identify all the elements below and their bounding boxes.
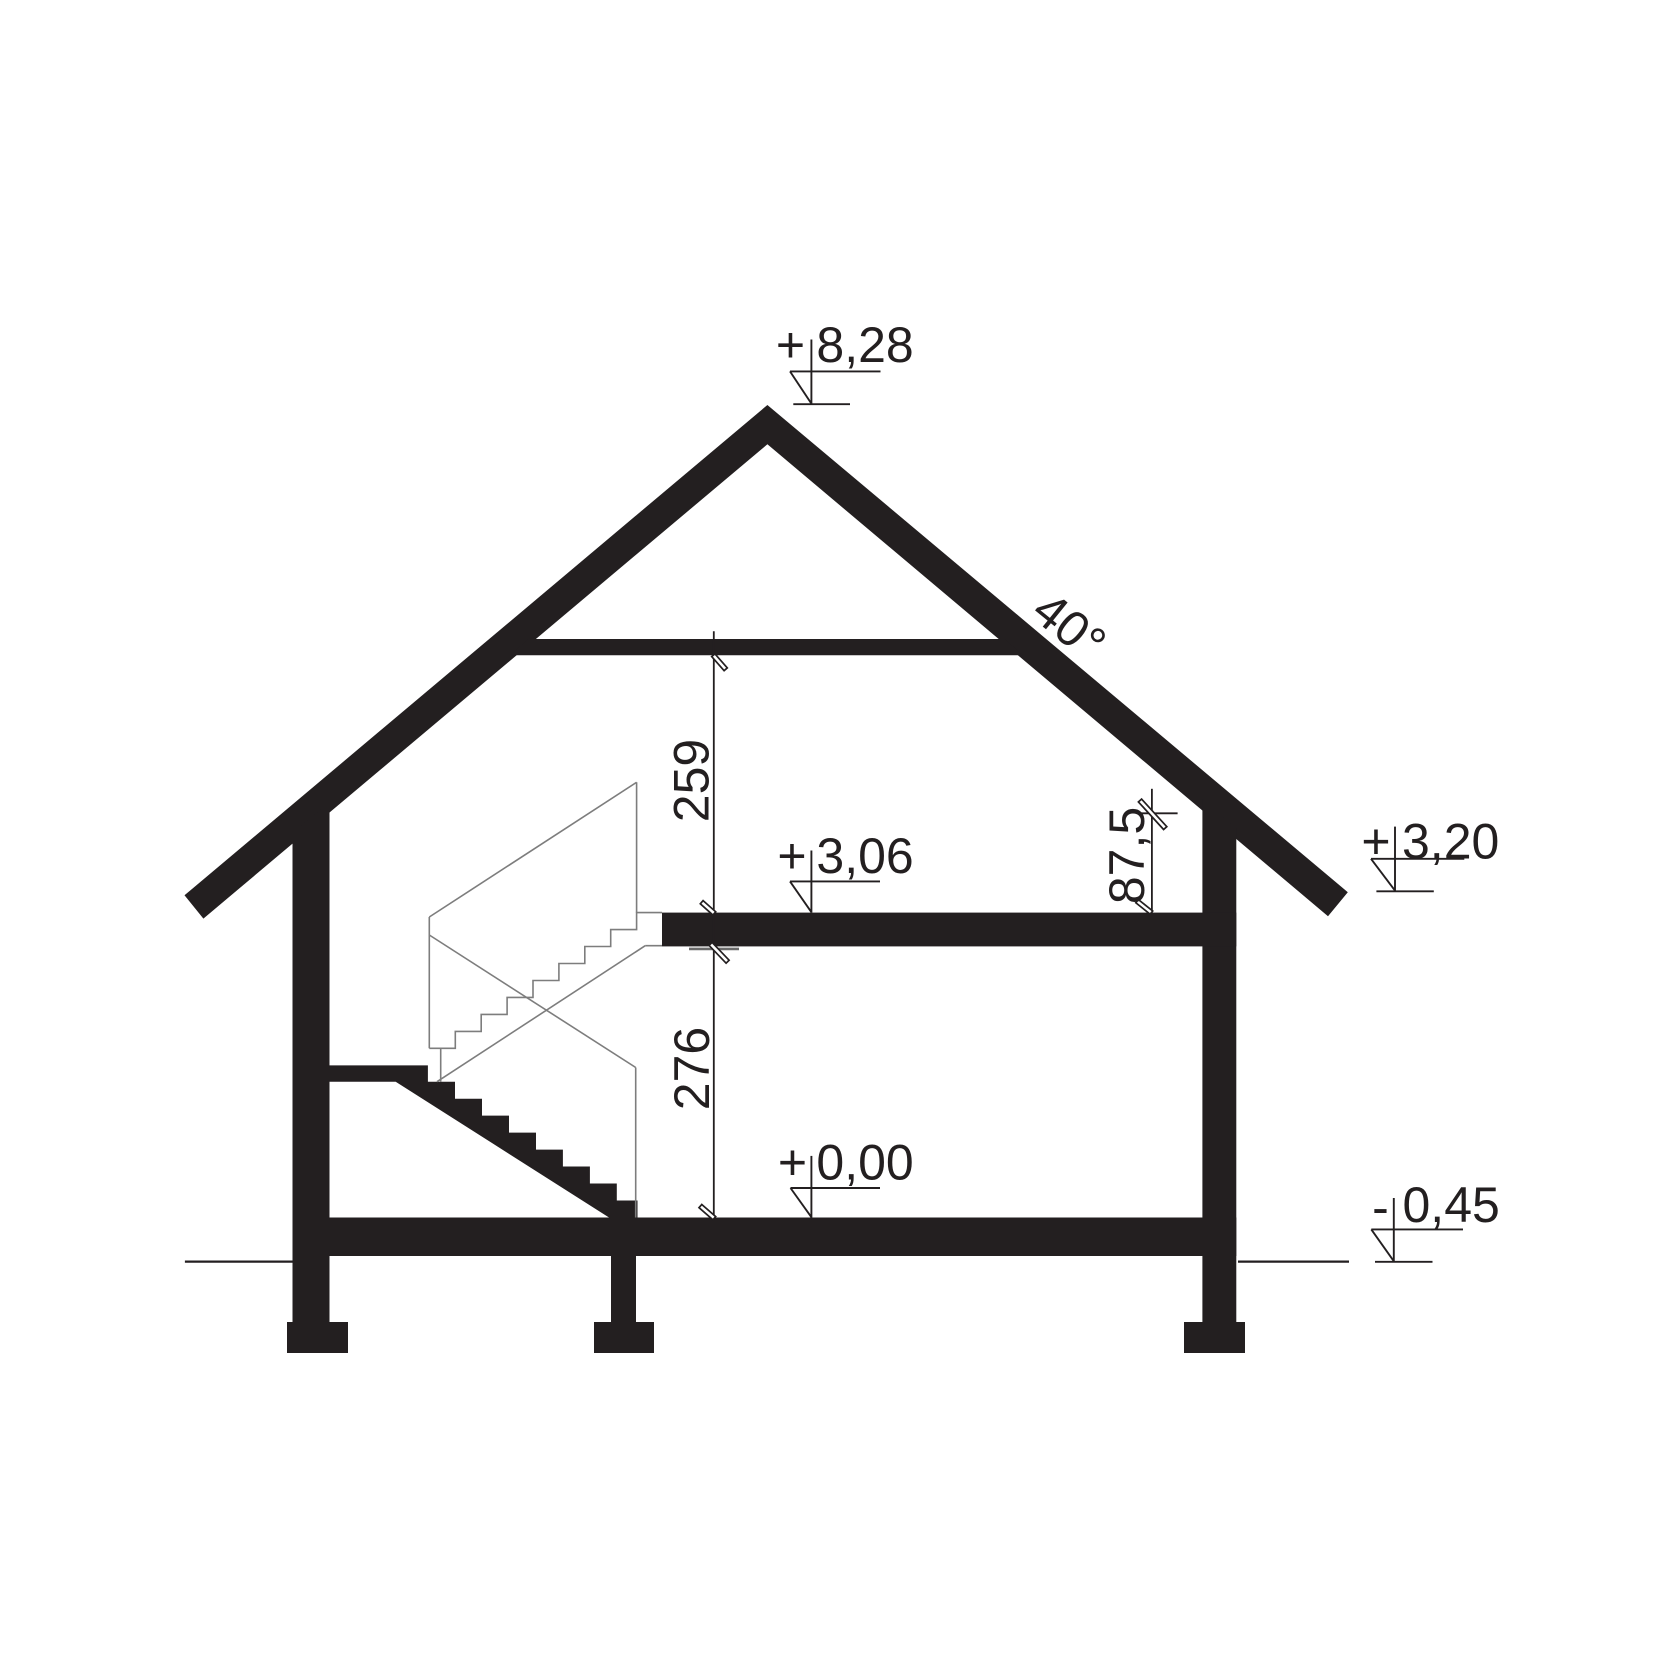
svg-text:0,45: 0,45 (1403, 1177, 1500, 1233)
svg-text:276: 276 (664, 1027, 720, 1110)
svg-text:0,00: 0,00 (816, 1135, 913, 1191)
svg-text:+: + (776, 317, 805, 373)
svg-text:3,06: 3,06 (816, 828, 913, 884)
svg-text:-: - (1372, 1180, 1389, 1236)
svg-text:87,5: 87,5 (1099, 807, 1155, 904)
svg-text:+: + (778, 1135, 807, 1191)
svg-text:259: 259 (664, 739, 720, 822)
svg-text:+: + (777, 828, 806, 884)
svg-text:3,20: 3,20 (1402, 814, 1499, 870)
svg-text:+: + (1361, 814, 1390, 870)
svg-text:8,28: 8,28 (816, 317, 913, 373)
